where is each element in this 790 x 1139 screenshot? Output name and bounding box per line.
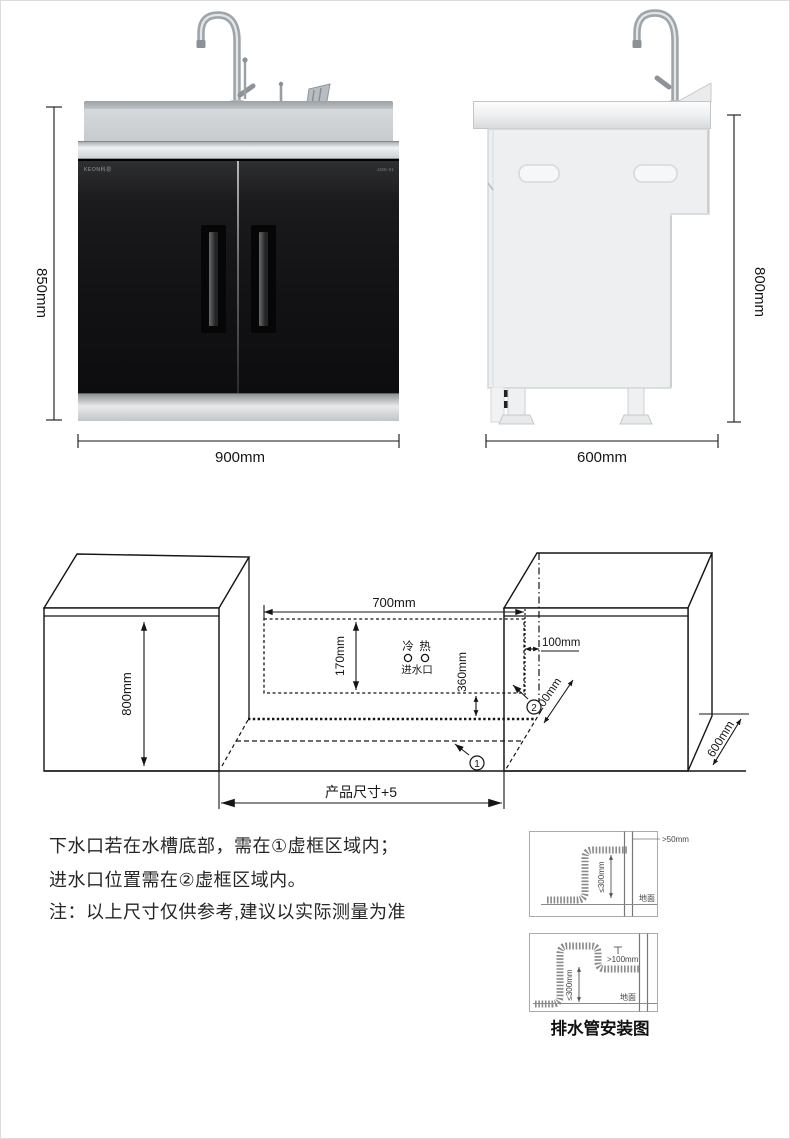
- zone2-height-label: 170mm: [333, 636, 347, 676]
- cold-label: 冷: [402, 640, 414, 653]
- bottom-offset-label: 360mm: [455, 652, 469, 692]
- side-gap-label: 100mm: [542, 637, 580, 649]
- side-depth-label: 600mm: [577, 449, 627, 466]
- opening-width-label: 产品尺寸+5: [325, 784, 397, 800]
- right-cabinet-box: [504, 553, 712, 771]
- hot-label: 热: [419, 640, 431, 653]
- side-height-label: 800mm: [751, 267, 768, 317]
- diagram-overlay: 850mm 900mm 800mm 600mm: [1, 1, 790, 1139]
- note-line-2: 进水口位置需在②虚框区域内。: [49, 866, 306, 892]
- front-view-dimensions: 850mm 900mm: [33, 107, 399, 466]
- drain-bottom-ground-label: 地面: [620, 992, 636, 1002]
- water-inlet-marks: 冷 热 进水口: [401, 640, 433, 676]
- front-width-label: 900mm: [215, 449, 265, 466]
- note-line-1: 下水口若在水槽底部，需在①虚框区域内；: [49, 832, 399, 858]
- note-line-3: 注：以上尺寸仅供参考,建议以实际测量为准: [49, 898, 406, 924]
- drain-bottom-gap-label: >100mm: [607, 955, 639, 964]
- cold-port-icon: [404, 654, 411, 661]
- side-view-dimensions: 800mm 600mm: [486, 115, 768, 466]
- zone1-number: 1: [474, 759, 480, 770]
- drain-diagram-bottom: >100mm ≤300mm 地面: [530, 934, 658, 1012]
- product-dimension-sheet: KEON科恩 JJSK-X1: [0, 0, 790, 1139]
- cabinet-height-label: 800mm: [119, 672, 134, 715]
- inlet-label: 进水口: [401, 664, 433, 676]
- zone2-number: 2: [531, 703, 537, 714]
- drain-top-ground-label: 地面: [639, 893, 655, 903]
- installation-diagram: 800mm 700mm 170mm 冷 热 进水口 360mm: [44, 553, 749, 809]
- drain-top-height-label: ≤300mm: [597, 861, 606, 892]
- left-depth-dashed: [222, 720, 248, 766]
- zone1-callout: 1: [455, 744, 484, 770]
- drain-pipe-diagrams: ≤300mm >50mm 地面 >100mm ≤300mm 地面: [530, 832, 690, 1012]
- front-height-label: 850mm: [33, 268, 50, 318]
- zone2-width-label: 700mm: [372, 595, 415, 610]
- zone2-dashed-rect: [264, 619, 524, 693]
- drain-diagram-top: ≤300mm >50mm 地面: [530, 832, 690, 917]
- hot-port-icon: [421, 654, 428, 661]
- left-cabinet-box: [44, 554, 249, 771]
- drain-bottom-height-label: ≤300mm: [565, 969, 574, 1000]
- drain-diagram-caption: 排水管安装图: [541, 1015, 659, 1039]
- drain-top-gap-label: >50mm: [662, 835, 689, 844]
